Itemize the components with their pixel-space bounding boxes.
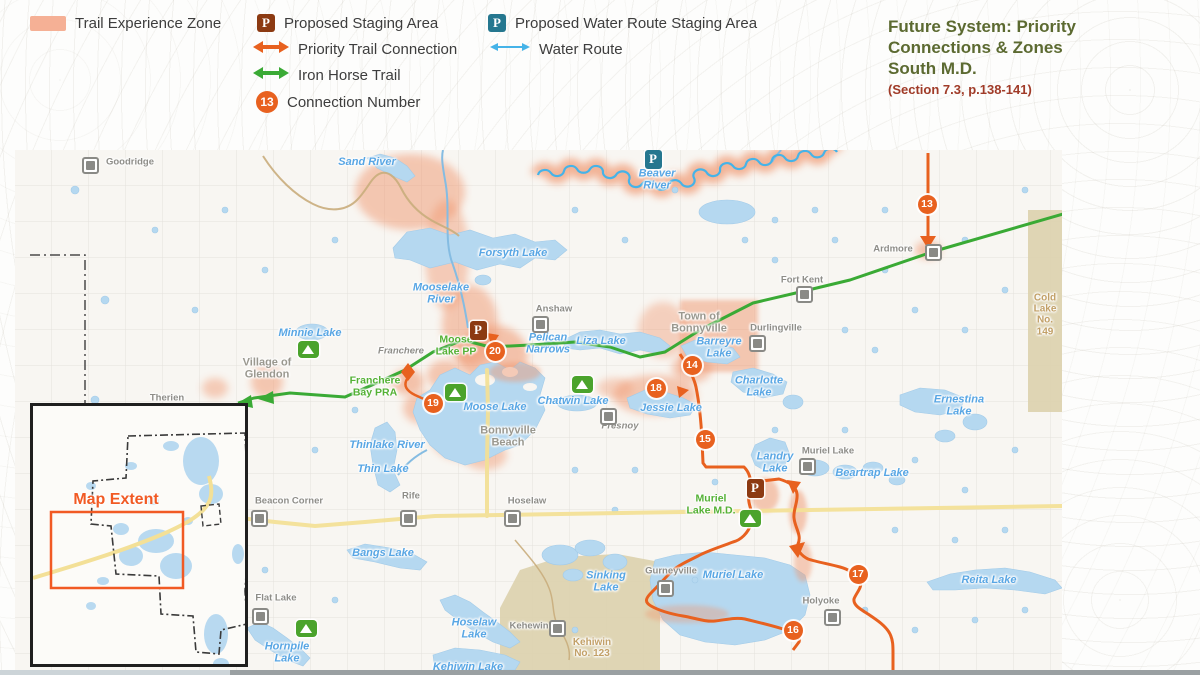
connection-number-badge-icon: 13 (256, 91, 278, 113)
map-label-anshaw: Anshaw (536, 305, 572, 316)
hamlet-icon-ardmore (925, 244, 942, 261)
connection-badge-18: 18 (647, 379, 666, 398)
priority-trail-arrow-icon (253, 40, 289, 58)
legend-label: Connection Number (287, 94, 420, 111)
staging-area-icon: P (257, 14, 275, 32)
map-extent-label: Map Extent (73, 491, 158, 509)
hamlet-icon-hoselaw (504, 510, 521, 527)
map-label-muriel-lake-md: Muriel Lake M.D. (686, 493, 735, 517)
map-label-landry-lake: Landry Lake (757, 451, 794, 476)
legend-iron-horse-trail: Iron Horse Trail (253, 66, 401, 84)
hamlet-icon-beacon-corner (251, 510, 268, 527)
map-label-thinlake-river: Thinlake River (349, 439, 424, 451)
bottom-edge-bar-left (0, 670, 230, 675)
map-label-goodridge: Goodridge (106, 158, 154, 169)
connection-badge-16: 16 (784, 621, 803, 640)
legend-trail-experience-zone: Trail Experience Zone (30, 15, 221, 32)
connection-badge-20: 20 (486, 342, 505, 361)
campground-icon (740, 510, 761, 527)
connection-badge-14: 14 (683, 356, 702, 375)
hamlet-icon-fresnoy (600, 408, 617, 425)
map-label-flat-lake: Flat Lake (255, 594, 296, 605)
map-label-reita-lake: Reita Lake (961, 574, 1016, 586)
legend-label: Iron Horse Trail (298, 67, 401, 84)
map-label-gurneyville: Gurneyville (645, 567, 697, 578)
inset-map-graphics (33, 406, 245, 664)
hamlet-icon-gurneyville (657, 580, 674, 597)
bottom-edge-bar-right (230, 670, 1200, 675)
water-route-arrow-icon (490, 40, 530, 58)
map-label-holyoke: Holyoke (803, 597, 840, 608)
legend-label: Proposed Staging Area (284, 15, 438, 32)
map-label-beaver-river: Beaver River (639, 168, 676, 193)
campground-icon (445, 384, 466, 401)
map-label-sand-river: Sand River (338, 156, 395, 168)
iron-horse-arrow-icon (253, 66, 289, 84)
map-label-moose-lake: Moose Lake (464, 401, 527, 413)
title-subtitle: (Section 7.3, p.138-141) (888, 81, 1193, 98)
map-label-thin-lake: Thin Lake (357, 463, 408, 475)
map-label-beacon-corner: Beacon Corner (255, 497, 323, 508)
map-label-franchere-bay-pra: Franchere Bay PRA (350, 375, 401, 399)
map-label-muriel-lake-hamlet: Muriel Lake (802, 447, 854, 458)
hamlet-icon-anshaw (532, 316, 549, 333)
map-label-village-of-glendon: Village of Glendon (243, 357, 292, 382)
map-label-beartrap-lake: Beartrap Lake (835, 467, 908, 479)
connection-badge-17: 17 (849, 565, 868, 584)
proposed-staging-area-marker-muriel-lake: P (747, 479, 764, 498)
connection-badge-19: 19 (424, 394, 443, 413)
map-label-jessie-lake: Jessie Lake (640, 402, 702, 414)
map-label-kehiwin-reserve: Kehiwin No. 123 (573, 637, 611, 659)
legend-label: Proposed Water Route Staging Area (515, 15, 757, 32)
trail-experience-zone-swatch (30, 16, 66, 31)
map-extent-inset: Map Extent (30, 403, 248, 667)
proposed-water-route-staging-area-marker: P (645, 150, 662, 169)
map-label-cold-lake-reserve: Cold Lake No. 149 (1034, 293, 1057, 338)
legend-proposed-water-route-staging-area: P Proposed Water Route Staging Area (488, 14, 757, 32)
hamlet-icon-muriel-lake (799, 458, 816, 475)
map-label-ardmore: Ardmore (873, 245, 913, 256)
hamlet-icon-kehewin (549, 620, 566, 637)
map-label-kehiwin-lake: Kehiwin Lake (433, 661, 503, 670)
map-label-forsyth-lake: Forsyth Lake (479, 247, 547, 259)
connection-badge-13: 13 (918, 195, 937, 214)
connection-badge-15: 15 (696, 430, 715, 449)
map-label-pelican-narrows: Pelican Narrows (526, 332, 570, 357)
map-label-charlotte-lake: Charlotte Lake (735, 375, 783, 400)
map-label-chatwin-lake: Chatwin Lake (538, 395, 609, 407)
water-staging-area-icon: P (488, 14, 506, 32)
legend-label: Trail Experience Zone (75, 15, 221, 32)
campground-icon (298, 341, 319, 358)
map-label-ernestina-lake: Ernestina Lake (934, 394, 984, 419)
map-label-minnie-lake: Minnie Lake (279, 327, 342, 339)
hamlet-icon-goodridge (82, 157, 99, 174)
hamlet-icon-rife (400, 510, 417, 527)
legend-connection-number: 13 Connection Number (256, 91, 420, 113)
map-label-hoselaw: Hoselaw (508, 497, 547, 508)
map-label-muriel-lake: Muriel Lake (703, 569, 764, 581)
legend-label: Water Route (539, 41, 623, 58)
hamlet-icon-holyoke (824, 609, 841, 626)
map-label-hornpile-lake: Hornpile Lake (265, 641, 310, 666)
legend-water-route: Water Route (490, 40, 623, 58)
proposed-staging-area-marker-moose-lake: P (470, 321, 487, 340)
map-title: Future System: Priority Connections & Zo… (888, 16, 1193, 98)
map-label-liza-lake: Liza Lake (576, 335, 626, 347)
map-label-bonnyville-beach: Bonnyville Beach (480, 425, 536, 450)
map-label-kehewin: Kehewin (509, 622, 548, 633)
map-label-franchere: Franchere (378, 347, 424, 358)
map-label-mooselake-river: Mooselake River (413, 282, 469, 307)
campground-icon (572, 376, 593, 393)
map-label-hoselaw-lake: Hoselaw Lake (452, 617, 497, 642)
legend-priority-trail-connection: Priority Trail Connection (253, 40, 457, 58)
map-label-barreyre-lake: Barreyre Lake (696, 336, 741, 361)
title-line3: South M.D. (888, 58, 1193, 79)
legend-label: Priority Trail Connection (298, 41, 457, 58)
title-line1: Future System: Priority (888, 16, 1193, 37)
map-label-sinking-lake: Sinking Lake (586, 570, 626, 595)
campground-icon (296, 620, 317, 637)
legend-proposed-staging-area: P Proposed Staging Area (257, 14, 438, 32)
title-line2: Connections & Zones (888, 37, 1193, 58)
map-label-rife: Rife (402, 492, 420, 503)
map-label-town-of-bonnyville: Town of Bonnyville (671, 311, 727, 336)
map-label-durlingville: Durlingville (750, 324, 802, 335)
hamlet-icon-flat-lake (252, 608, 269, 625)
map-label-fort-kent: Fort Kent (781, 276, 823, 287)
hamlet-icon-durlingville (749, 335, 766, 352)
map-label-bangs-lake: Bangs Lake (352, 547, 414, 559)
hamlet-icon-fort-kent (796, 286, 813, 303)
